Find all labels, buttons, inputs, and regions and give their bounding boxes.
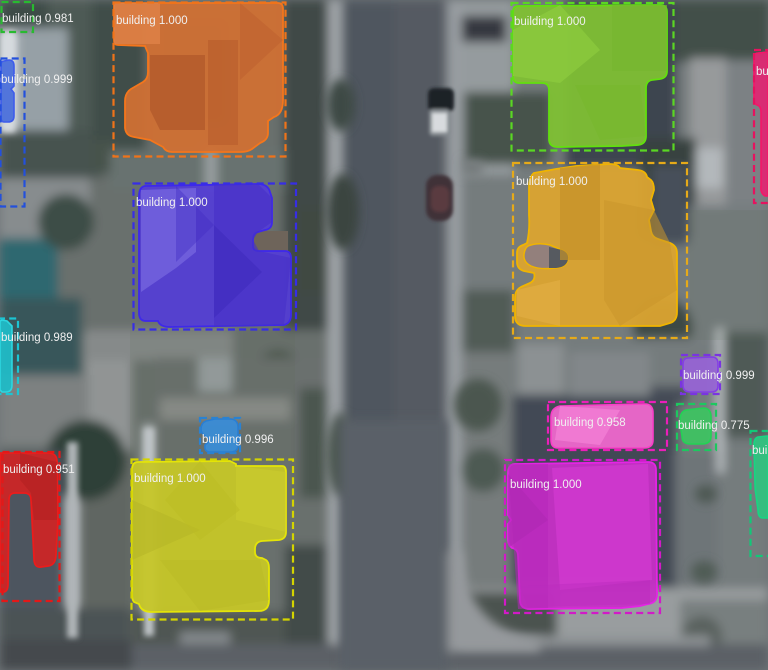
svg-text:building 0.951: building 0.951 (3, 464, 75, 476)
svg-text:building 1.000: building 1.000 (514, 16, 586, 28)
svg-text:building 1.000: building 1.000 (510, 479, 582, 491)
svg-text:building 0.996: building 0.996 (202, 434, 274, 446)
svg-text:building 0.989: building 0.989 (1, 332, 73, 344)
svg-text:building 0.999: building 0.999 (1, 74, 73, 86)
svg-text:building 0.958: building 0.958 (554, 417, 626, 429)
svg-text:building 1.000: building 1.000 (116, 15, 188, 27)
svg-text:building 0.9: building 0.9 (756, 66, 768, 78)
svg-text:building 1.000: building 1.000 (516, 176, 588, 188)
svg-text:building 0.775: building 0.775 (678, 420, 750, 432)
svg-text:building 0.981: building 0.981 (2, 13, 74, 25)
svg-text:building 1.000: building 1.000 (134, 473, 206, 485)
svg-text:building 0.999: building 0.999 (683, 370, 755, 382)
svg-text:building 0.7: building 0.7 (752, 445, 768, 457)
svg-text:building 1.000: building 1.000 (136, 197, 208, 209)
